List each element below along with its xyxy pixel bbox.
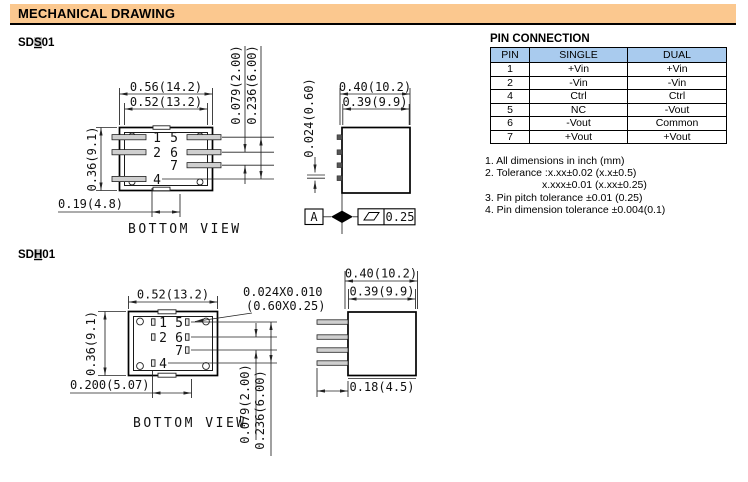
dim-label: 0.40(10.2) bbox=[339, 80, 411, 94]
pin-number-4: 4 bbox=[153, 173, 161, 188]
pin-stub bbox=[337, 135, 342, 140]
note-line: 1. All dimensions in inch (mm) bbox=[485, 155, 665, 167]
pin-number-4: 4 bbox=[159, 357, 167, 372]
dim-width-inner: 0.52(13.2) bbox=[125, 95, 208, 125]
pin-bar-5 bbox=[187, 135, 221, 140]
case-seam-tab bbox=[158, 373, 176, 377]
cell-pin: 5 bbox=[491, 103, 530, 117]
cell-single: +Vout bbox=[530, 130, 628, 144]
dim-label: 0.39(9.9) bbox=[349, 285, 414, 299]
cell-single: Ctrl bbox=[530, 90, 628, 104]
flatness-value: 0.25 bbox=[386, 210, 415, 224]
table-row: 6 -Vout Common bbox=[491, 117, 727, 131]
pin-lead bbox=[317, 335, 348, 340]
dim-side-width-inner: 0.39(9.9) bbox=[342, 95, 409, 125]
tolerance-notes: 1. All dimensions in inch (mm) 2. Tolera… bbox=[485, 155, 665, 216]
pin-bar-6 bbox=[187, 150, 221, 155]
pin-lead bbox=[317, 320, 348, 325]
table-row: 5 NC -Vout bbox=[491, 103, 727, 117]
pin-lead bbox=[317, 361, 348, 366]
dim-label: 0.200(5.07) bbox=[70, 378, 149, 392]
pin-number-1: 1 bbox=[153, 131, 161, 146]
dim-label: 0.52(13.2) bbox=[130, 95, 202, 109]
dim-label: 0.19(4.8) bbox=[58, 197, 123, 211]
flatness-symbol-icon bbox=[364, 213, 379, 221]
pin-number-5: 5 bbox=[175, 316, 183, 331]
cell-pin: 1 bbox=[491, 63, 530, 77]
dim-label: 0.079(2.00) bbox=[238, 364, 252, 443]
pin-connection-section: PIN CONNECTION PIN SINGLE DUAL 1 +Vin +V… bbox=[490, 33, 727, 144]
cell-dual: Ctrl bbox=[628, 90, 727, 104]
cell-dual: Common bbox=[628, 117, 727, 131]
corner-hole bbox=[203, 363, 210, 370]
sds01-side-view: 0.40(10.2) 0.39(9.9) 0.024(0.60) A bbox=[302, 78, 415, 234]
dim-label: 0.079(2.00) bbox=[229, 45, 243, 124]
dim-label: 0.36(9.1) bbox=[85, 126, 99, 191]
cell-pin: 2 bbox=[491, 76, 530, 90]
case-seam-tab bbox=[153, 126, 170, 130]
pin-connection-table: PIN SINGLE DUAL 1 +Vin +Vin 2 -Vin -Vin … bbox=[490, 47, 727, 144]
datum-flatness-callout: A 0.25 bbox=[305, 194, 415, 235]
cell-single: +Vin bbox=[530, 63, 628, 77]
dim-label: 0.024(0.60) bbox=[302, 78, 316, 157]
dim-label: 0.18(4.5) bbox=[349, 380, 414, 394]
pin-pad-2 bbox=[152, 334, 156, 341]
package-outline bbox=[342, 128, 410, 194]
pin-lead bbox=[317, 348, 348, 353]
col-header-pin: PIN bbox=[491, 48, 530, 63]
dim-height: 0.36(9.1) bbox=[84, 311, 126, 376]
pin-pad-6 bbox=[186, 334, 190, 341]
pin-bar-7 bbox=[187, 163, 221, 168]
table-row: 2 -Vin -Vin bbox=[491, 76, 727, 90]
dim-label: 0.236(6.00) bbox=[253, 370, 267, 449]
pin-pad-5 bbox=[186, 319, 190, 326]
pin-stub bbox=[337, 176, 342, 181]
datum-diamond bbox=[331, 211, 353, 223]
cell-pin: 4 bbox=[491, 90, 530, 104]
cell-pin: 6 bbox=[491, 117, 530, 131]
cell-dual: -Vin bbox=[628, 76, 727, 90]
note-line-continuation: x.xxx±0.01 (x.xx±0.25) bbox=[485, 179, 665, 191]
note-line: 2. Tolerance :x.xx±0.02 (x.x±0.5) bbox=[485, 167, 665, 179]
note-line: 3. Pin pitch tolerance ±0.01 (0.25) bbox=[485, 192, 665, 204]
dim-label: 0.56(14.2) bbox=[130, 80, 202, 94]
pin-pad-1 bbox=[152, 319, 156, 326]
annotation-line1: 0.024X0.010 bbox=[243, 285, 322, 299]
corner-hole bbox=[197, 179, 203, 185]
sdh01-bottom-view: 1 5 2 6 7 4 0.52(13.2) 0.36(9.1) 0.2 bbox=[70, 285, 325, 456]
dim-side-width-inner: 0.39(9.9) bbox=[349, 285, 416, 310]
col-header-dual: DUAL bbox=[628, 48, 727, 63]
table-row: 7 +Vout +Vout bbox=[491, 130, 727, 144]
pin-number-7: 7 bbox=[170, 159, 178, 174]
pin-stub bbox=[337, 163, 342, 168]
datasheet-page: MECHANICAL DRAWING SDS01 SDH01 bbox=[0, 0, 748, 482]
pin-pad-4 bbox=[152, 360, 156, 367]
dim-width: 0.52(13.2) bbox=[129, 288, 218, 310]
package-outline bbox=[348, 312, 416, 376]
pin-number-2: 2 bbox=[153, 146, 161, 161]
pin-number-1: 1 bbox=[159, 316, 167, 331]
cell-single: -Vin bbox=[530, 76, 628, 90]
pin-table-title: PIN CONNECTION bbox=[490, 33, 727, 45]
table-row: 1 +Vin +Vin bbox=[491, 63, 727, 77]
cell-dual: +Vin bbox=[628, 63, 727, 77]
pin-pad-7 bbox=[186, 347, 190, 354]
view-caption: BOTTOM VIEW bbox=[128, 222, 242, 237]
cell-single: -Vout bbox=[530, 117, 628, 131]
col-header-single: SINGLE bbox=[530, 48, 628, 63]
case-seam-tab bbox=[158, 310, 176, 314]
corner-hole bbox=[137, 318, 144, 325]
annotation-line2: (0.60X0.25) bbox=[246, 299, 325, 313]
table-header-row: PIN SINGLE DUAL bbox=[491, 48, 727, 63]
pin-number-7: 7 bbox=[175, 344, 183, 359]
dim-label: 0.52(13.2) bbox=[137, 288, 209, 302]
pin-stub bbox=[337, 150, 342, 155]
dim-label: 0.36(9.1) bbox=[84, 311, 98, 376]
table-row: 4 Ctrl Ctrl bbox=[491, 90, 727, 104]
pin-bar-4 bbox=[112, 176, 146, 181]
pin-number-5: 5 bbox=[170, 131, 178, 146]
dim-pin-length: 0.19(4.8) bbox=[58, 188, 180, 217]
dim-label: 0.40(10.2) bbox=[345, 267, 417, 281]
cell-dual: -Vout bbox=[628, 103, 727, 117]
view-caption: BOTTOM VIEW bbox=[133, 416, 247, 431]
cell-dual: +Vout bbox=[628, 130, 727, 144]
datum-letter: A bbox=[310, 210, 318, 224]
pin-number-2: 2 bbox=[159, 331, 167, 346]
cell-single: NC bbox=[530, 103, 628, 117]
note-line: 4. Pin dimension tolerance ±0.004(0.1) bbox=[485, 204, 665, 216]
sdh01-side-view: 0.40(10.2) 0.39(9.9) 0.18(4.5) bbox=[317, 267, 418, 398]
corner-hole bbox=[137, 363, 144, 370]
pin-bar-2 bbox=[112, 150, 146, 155]
pin-bar-1 bbox=[112, 135, 146, 140]
dim-pin-thickness: 0.024(0.60) bbox=[302, 78, 325, 193]
dim-label: 0.236(6.00) bbox=[245, 45, 259, 124]
sds01-bottom-view: 1 5 2 6 7 4 0.56(14.2) 0.52(13.2) bbox=[58, 45, 274, 237]
dim-label: 0.39(9.9) bbox=[342, 95, 407, 109]
cell-pin: 7 bbox=[491, 130, 530, 144]
